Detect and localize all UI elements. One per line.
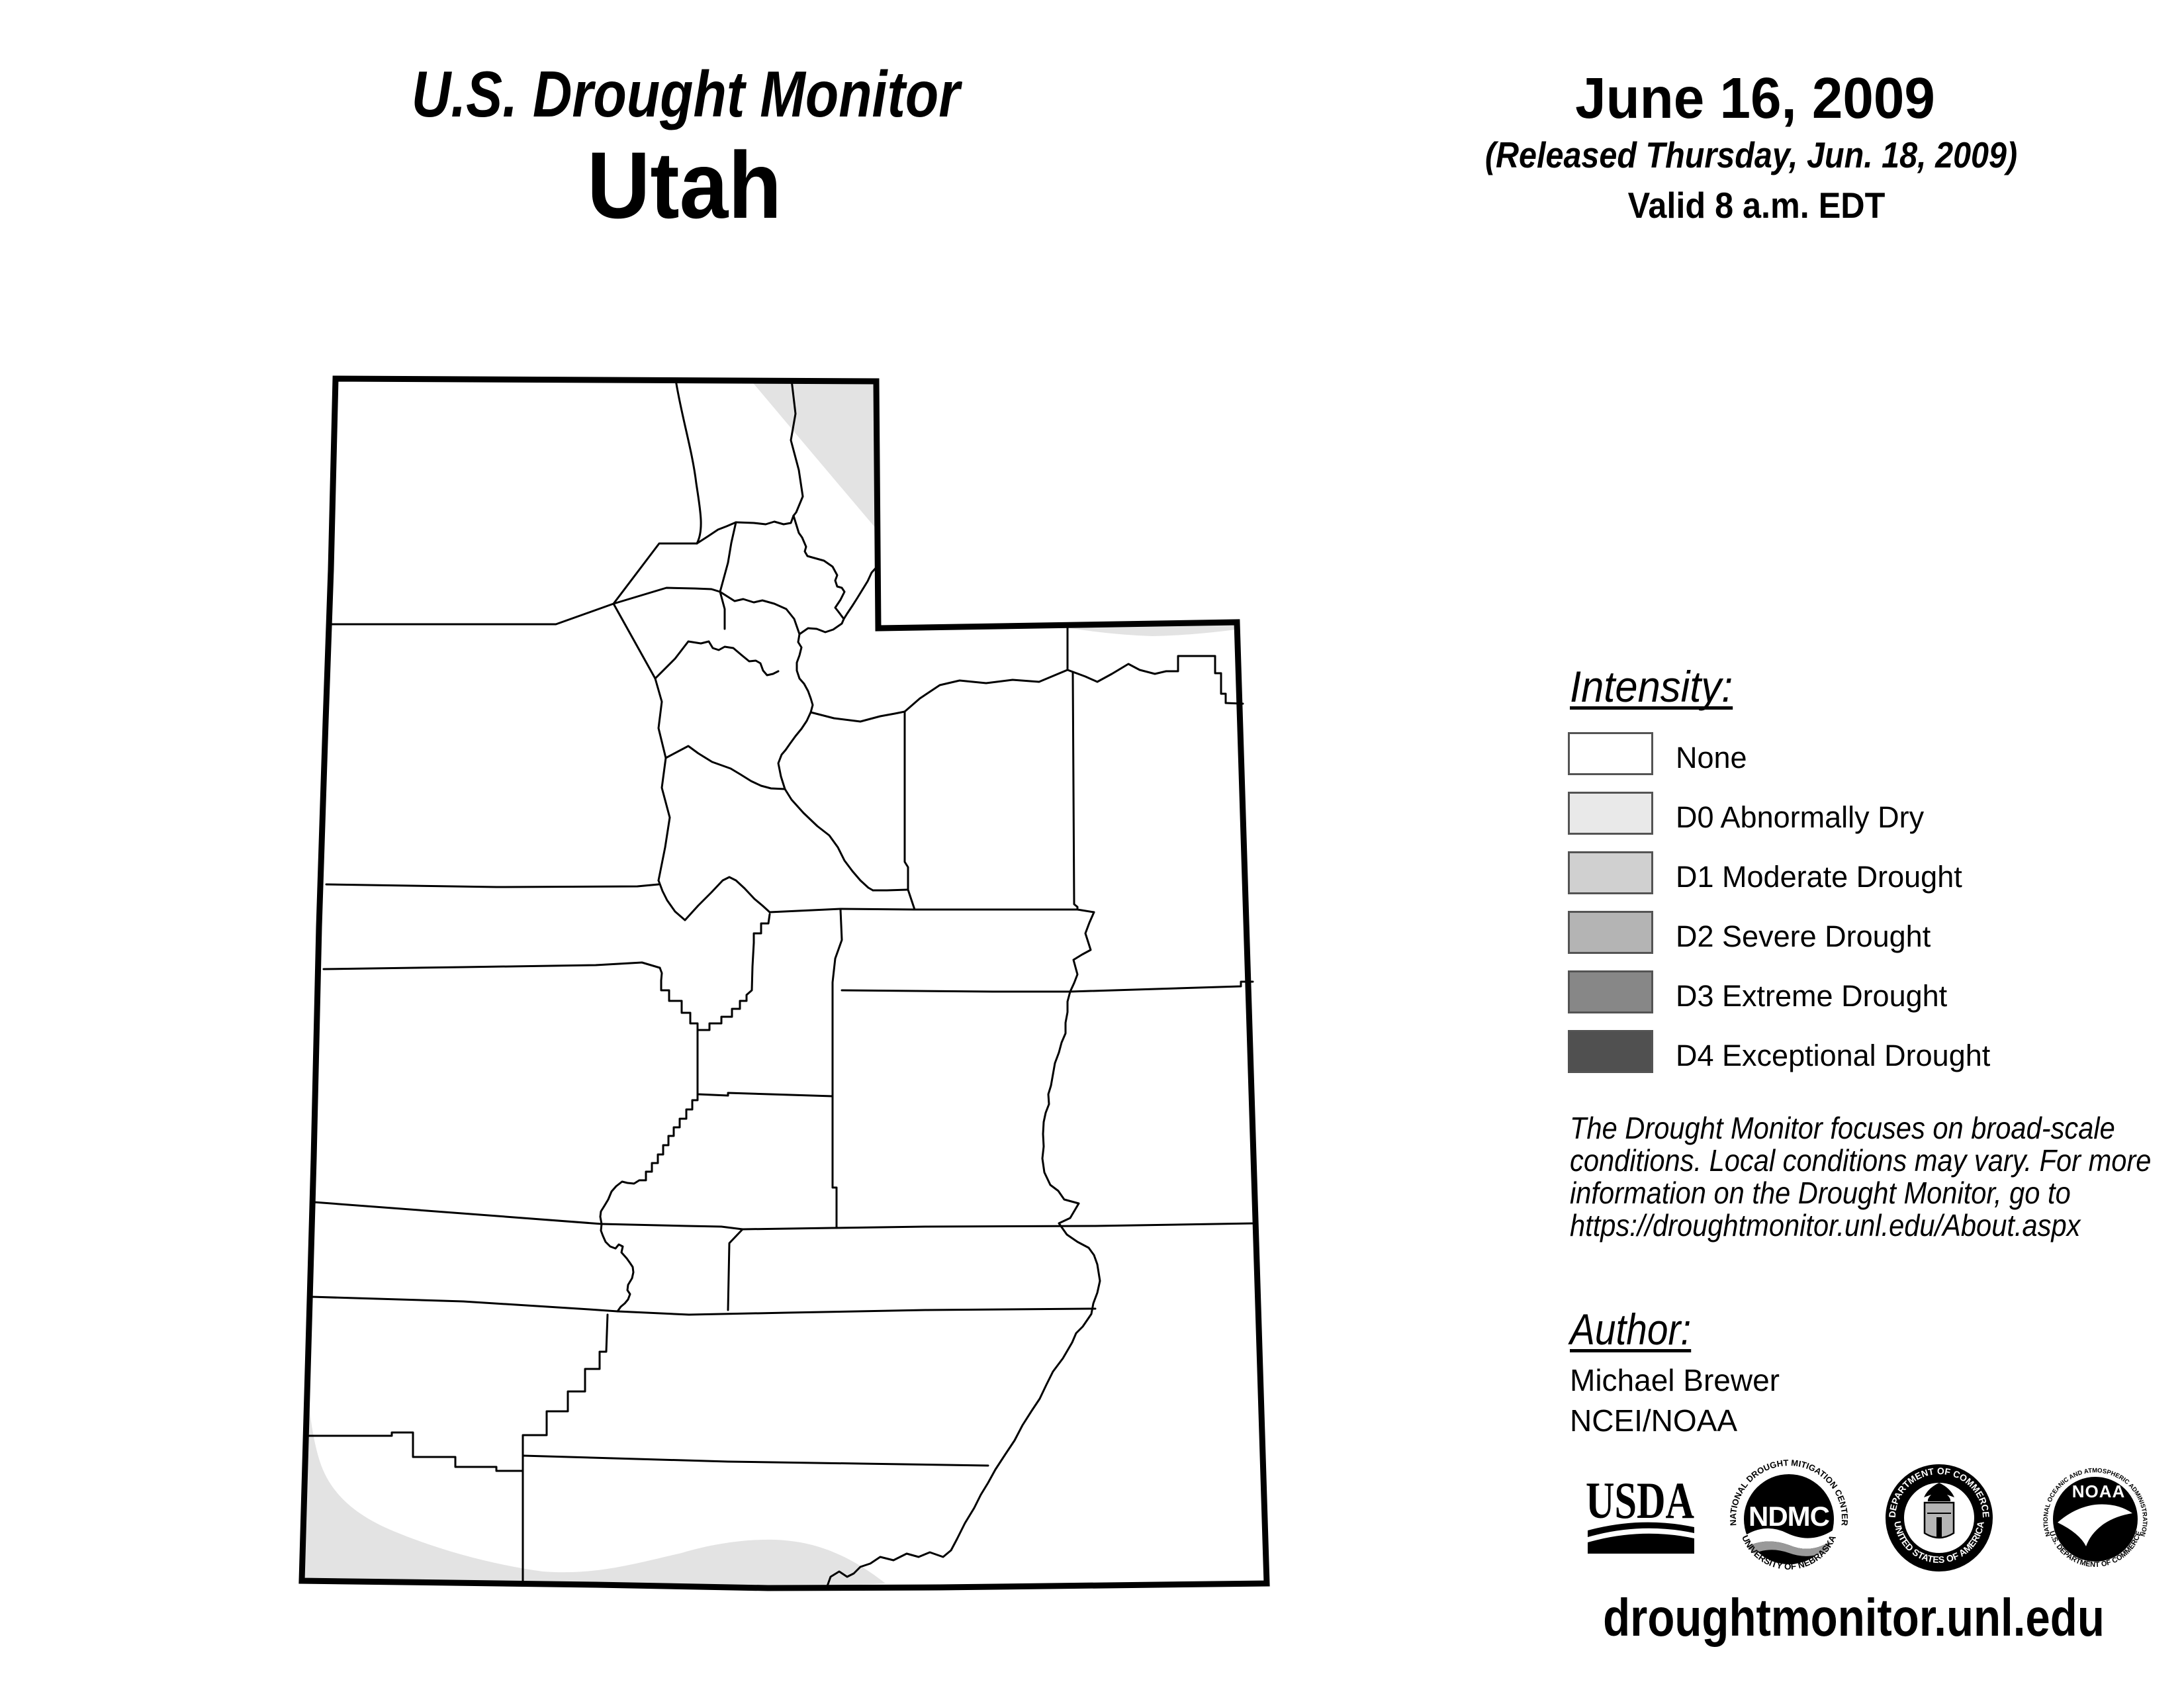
svg-text:USDA: USDA (1586, 1472, 1694, 1529)
svg-text:NOAA: NOAA (2072, 1481, 2126, 1501)
svg-text:NDMC: NDMC (1749, 1501, 1830, 1532)
